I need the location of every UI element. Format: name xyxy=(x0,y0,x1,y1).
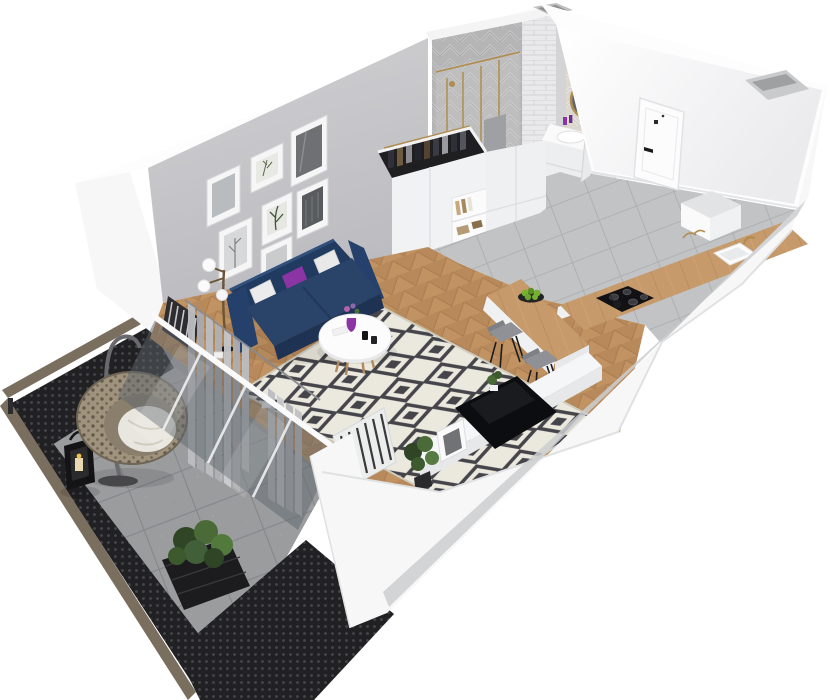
burner xyxy=(629,299,638,305)
cosmetic-bottle xyxy=(563,117,567,125)
candle xyxy=(75,458,83,471)
candle-flame xyxy=(77,454,82,459)
flower xyxy=(350,303,355,308)
apple xyxy=(528,288,534,294)
chair-base xyxy=(98,476,138,487)
entry-door xyxy=(634,98,684,190)
lamp-globe xyxy=(217,290,228,301)
burner xyxy=(623,289,631,294)
flower xyxy=(344,306,350,312)
lamp-globe xyxy=(203,259,216,272)
foliage xyxy=(425,451,439,465)
lantern-shadow xyxy=(60,486,100,498)
shower-head xyxy=(449,81,455,87)
plant-pot xyxy=(490,385,498,391)
foliage xyxy=(168,547,186,565)
curtain-holdback xyxy=(214,352,223,358)
door-lock xyxy=(654,120,658,124)
floorplan-stage xyxy=(0,0,830,700)
burner xyxy=(640,295,647,300)
foliage xyxy=(411,457,425,471)
apple xyxy=(525,294,531,300)
flower-leaf xyxy=(355,309,360,314)
railing-post xyxy=(8,398,13,414)
apartment-render xyxy=(0,0,830,700)
foliage xyxy=(494,371,502,379)
foliage xyxy=(204,548,224,568)
kettle xyxy=(613,300,621,308)
apple xyxy=(532,294,538,300)
basin xyxy=(557,131,585,143)
foliage xyxy=(417,436,433,452)
cosmetic-bottle xyxy=(569,115,572,123)
lamp-globe xyxy=(198,280,210,292)
candle-holder xyxy=(362,331,368,340)
candle-holder xyxy=(371,336,377,344)
peephole xyxy=(662,115,665,118)
